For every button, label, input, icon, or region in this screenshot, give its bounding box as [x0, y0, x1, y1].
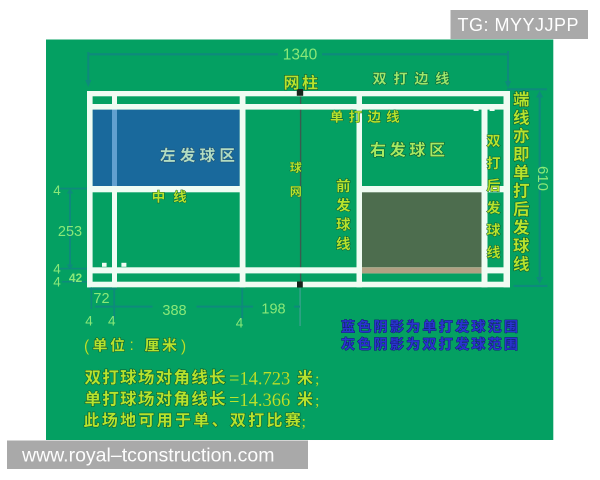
svg-text:72: 72	[93, 291, 109, 307]
svg-text::: :	[130, 337, 134, 354]
svg-text:www.royal–tconstruction.com: www.royal–tconstruction.com	[21, 445, 275, 467]
svg-text:(: (	[84, 338, 90, 355]
svg-text:388: 388	[162, 303, 186, 319]
svg-text:1340: 1340	[283, 47, 318, 64]
svg-text:;: ;	[315, 371, 319, 388]
svg-text:610: 610	[534, 166, 551, 191]
svg-text:4: 4	[85, 314, 93, 329]
svg-text:4: 4	[53, 275, 61, 290]
svg-text:42: 42	[69, 271, 83, 285]
svg-text:4: 4	[236, 315, 244, 330]
svg-text:=14.723: =14.723	[229, 370, 290, 390]
svg-text:4: 4	[108, 314, 116, 329]
svg-text:253: 253	[58, 224, 82, 240]
svg-text:;: ;	[302, 414, 306, 431]
svg-text:): )	[181, 338, 186, 355]
svg-text:TG: MYYJJPP: TG: MYYJJPP	[458, 15, 580, 35]
svg-text:=14.366: =14.366	[229, 391, 290, 411]
svg-text:198: 198	[261, 302, 285, 318]
svg-text:;: ;	[315, 393, 319, 410]
svg-text:4: 4	[53, 183, 61, 198]
